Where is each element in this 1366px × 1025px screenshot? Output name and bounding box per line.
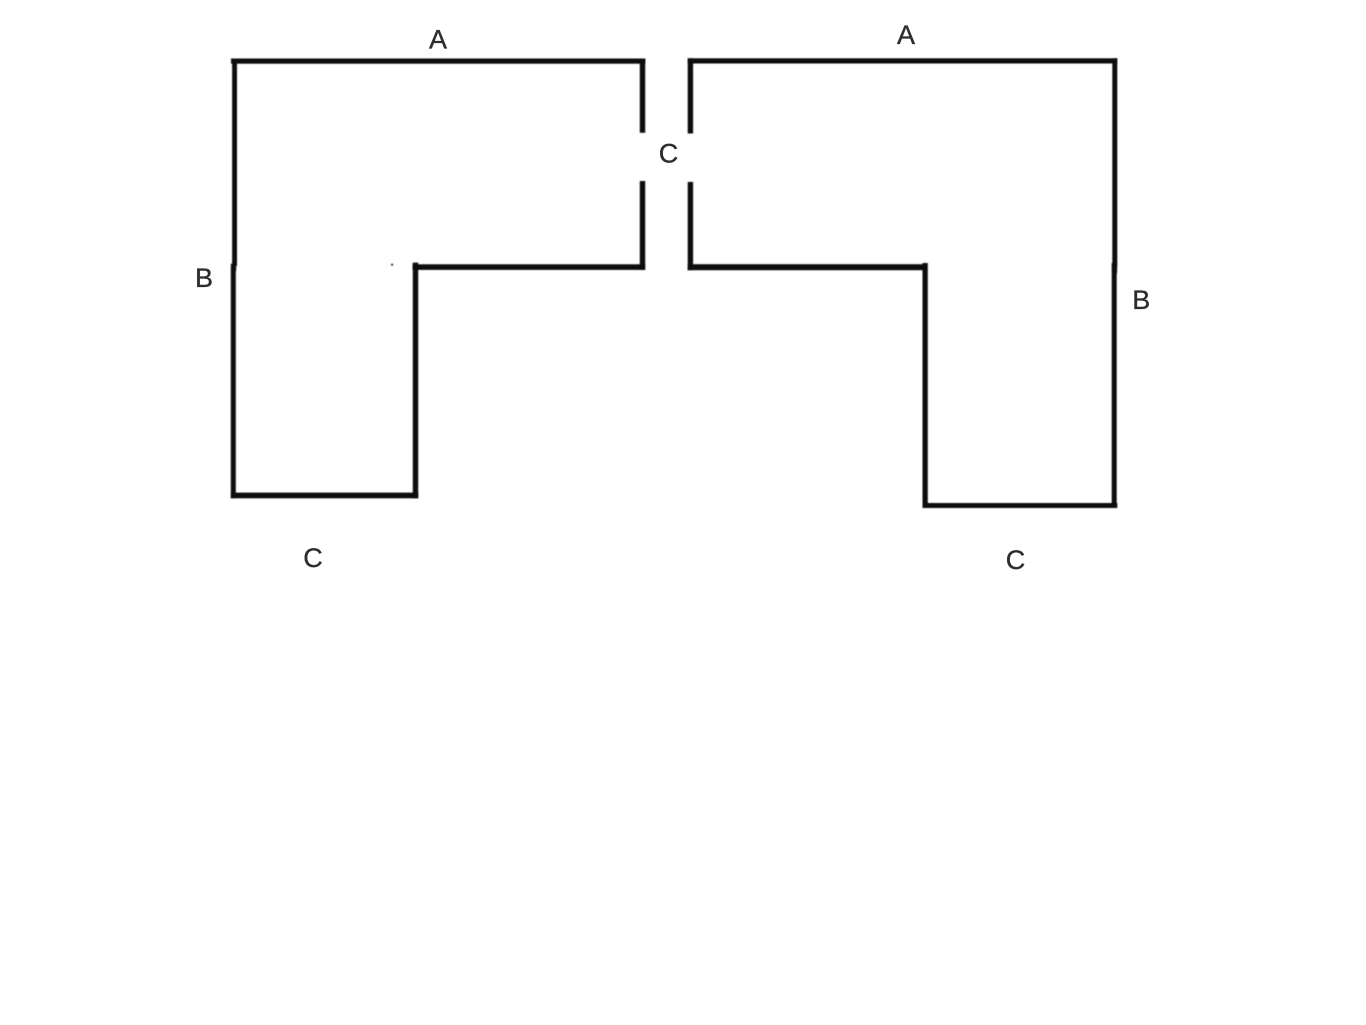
svg-text:B: B (195, 263, 213, 293)
svg-text:A: A (897, 20, 915, 50)
svg-text:A: A (429, 24, 447, 54)
svg-text:C: C (1006, 545, 1026, 575)
svg-text:C: C (659, 138, 679, 168)
svg-text:B: B (1132, 285, 1150, 315)
svg-text:C: C (303, 543, 323, 573)
